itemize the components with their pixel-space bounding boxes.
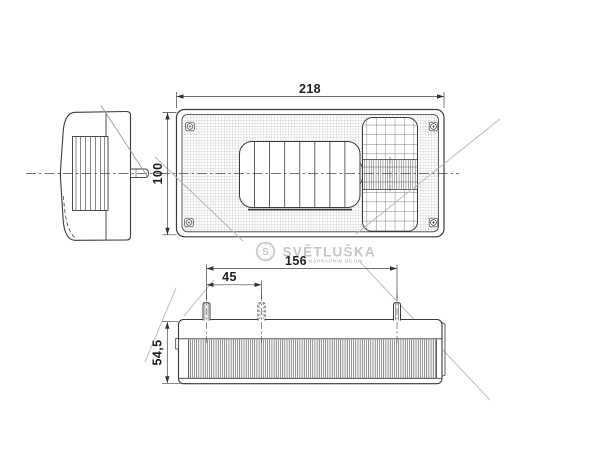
brand-logo-icon: S (257, 243, 275, 261)
technical-drawing-page: S SVĚTLUŠKA K NÁHRADNÍM DÍLŮM 21 (0, 0, 600, 475)
front-view-center-window (240, 142, 363, 210)
bottom-view-left-tab (176, 339, 179, 350)
dim-front-width-value: 218 (299, 82, 321, 96)
side-view (26, 106, 163, 241)
front-view (160, 110, 459, 237)
dim-front-height-value: 100 (151, 162, 165, 184)
bottom-view-rib-band (189, 340, 437, 379)
dim-body-depth-value: 54,5 (151, 340, 165, 366)
screw-icon (429, 218, 438, 227)
dim-stud-span-value: 156 (285, 254, 307, 268)
dim-stud-offset-value: 45 (222, 270, 237, 284)
bottom-view (176, 294, 445, 384)
watermark: S SVĚTLUŠKA K NÁHRADNÍM DÍLŮM (257, 243, 376, 265)
dim-front-width: 218 (177, 82, 445, 108)
dim-stud-offset: 45 (207, 270, 262, 299)
screw-icon (186, 122, 195, 131)
tail-lamp-drawing: S SVĚTLUŠKA K NÁHRADNÍM DÍLŮM 21 (0, 0, 600, 475)
logo-letter: S (262, 247, 269, 258)
screw-icon (185, 218, 194, 227)
screw-icon (429, 122, 438, 131)
